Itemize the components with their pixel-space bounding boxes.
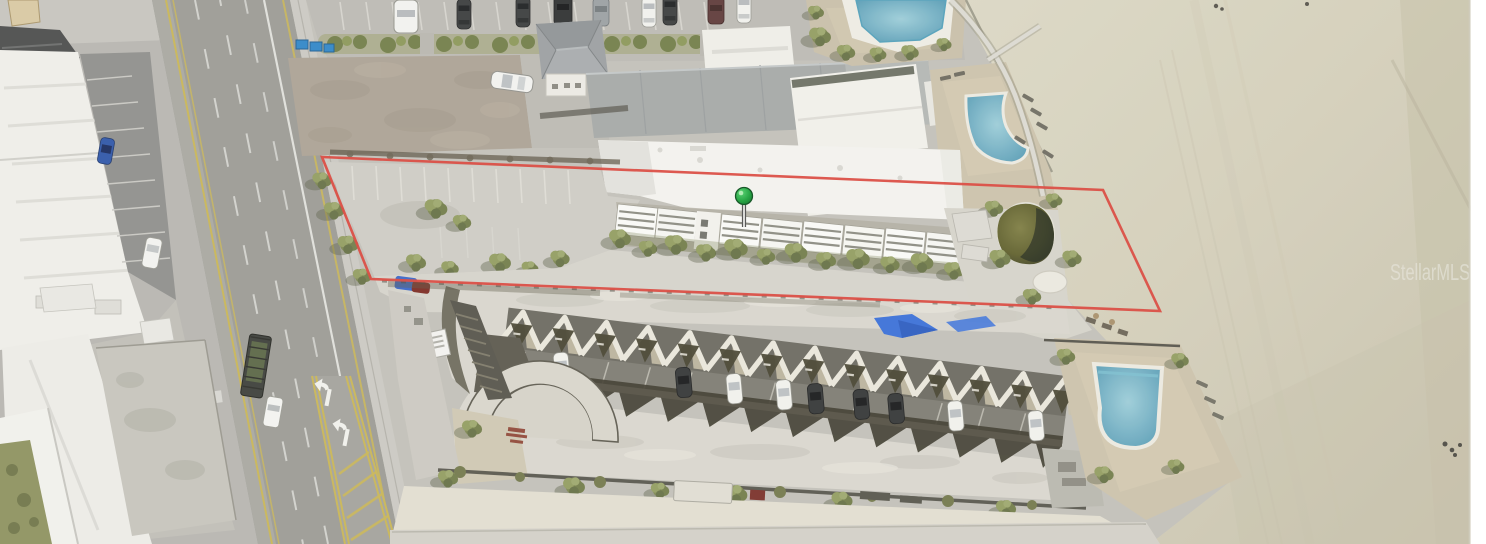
svg-text:StellarMLS: StellarMLS xyxy=(1390,259,1470,285)
